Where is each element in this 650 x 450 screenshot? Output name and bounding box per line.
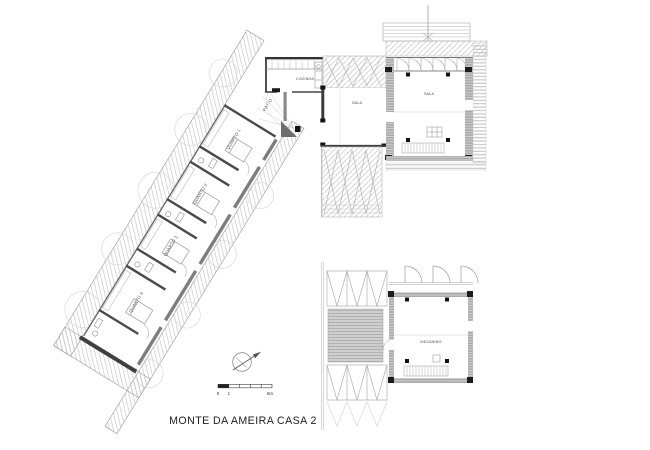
table — [427, 127, 442, 137]
mezzanine-west-wall — [389, 292, 394, 381]
label-cozinha: COZINHA — [296, 77, 314, 81]
pavilion-east-deck — [473, 43, 486, 163]
north-arrow — [233, 352, 261, 372]
patio-wall — [284, 88, 287, 121]
mezzanine-east-wall — [468, 292, 473, 381]
west-door-opening — [389, 339, 394, 350]
deck-gray-platform — [328, 309, 383, 362]
scale-label-0: 0 — [217, 391, 220, 396]
kitchen-corner-block — [272, 88, 280, 92]
scale-label-1: 1 — [228, 391, 231, 396]
living-room-interior: SALA — [320, 86, 386, 148]
north-arrow-head — [253, 352, 261, 359]
floor-plan-svg: QUARTO 4 QUARTO 3 QUARTO 2 QUARTO 1 PÁTI… — [0, 0, 650, 450]
east-wall-opening — [465, 100, 473, 110]
pavilion-west-wall — [386, 57, 394, 161]
east-door-opening — [468, 321, 473, 331]
deck-south-complex — [321, 262, 387, 430]
pavilion-south-deck — [386, 163, 486, 170]
patio-post — [295, 126, 301, 132]
sala-pavilion: SALA — [385, 41, 487, 170]
scale-bar: 0 1 5m — [217, 384, 274, 396]
roof-fans — [389, 266, 478, 284]
kitchen-floor — [265, 57, 323, 92]
west-wall-opening — [386, 112, 394, 122]
sala-floor — [323, 88, 386, 146]
deck-north — [323, 56, 386, 88]
truss-band-faint — [327, 402, 387, 426]
floor-plan-page: QUARTO 4 QUARTO 3 QUARTO 2 QUARTO 1 PÁTI… — [0, 0, 650, 450]
mezzanine-bottom-wall — [389, 378, 473, 383]
sala-left-wall — [321, 87, 324, 122]
kitchen: COZINHA — [265, 57, 323, 92]
truss-band-bottom — [327, 365, 387, 400]
truss-band-top — [327, 271, 387, 306]
label-sala-interior: SALA — [352, 101, 363, 105]
north-pergola — [383, 5, 470, 41]
label-mezanino: MEZANINO — [420, 340, 441, 344]
deck-middle — [322, 147, 383, 217]
scale-label-5m: 5m — [267, 391, 273, 396]
label-sala-pavilion: SALA — [424, 92, 435, 96]
mezzanine-top-wall — [389, 292, 473, 297]
pavilion-north-deck — [386, 41, 487, 56]
scale-bar-filled-segment — [218, 384, 229, 388]
drawing-title: MONTE DA AMEIRA CASA 2 — [169, 415, 317, 427]
mezzanine-pavilion: MEZANINO — [383, 266, 478, 383]
pavilion-bottom-wall — [386, 156, 473, 161]
